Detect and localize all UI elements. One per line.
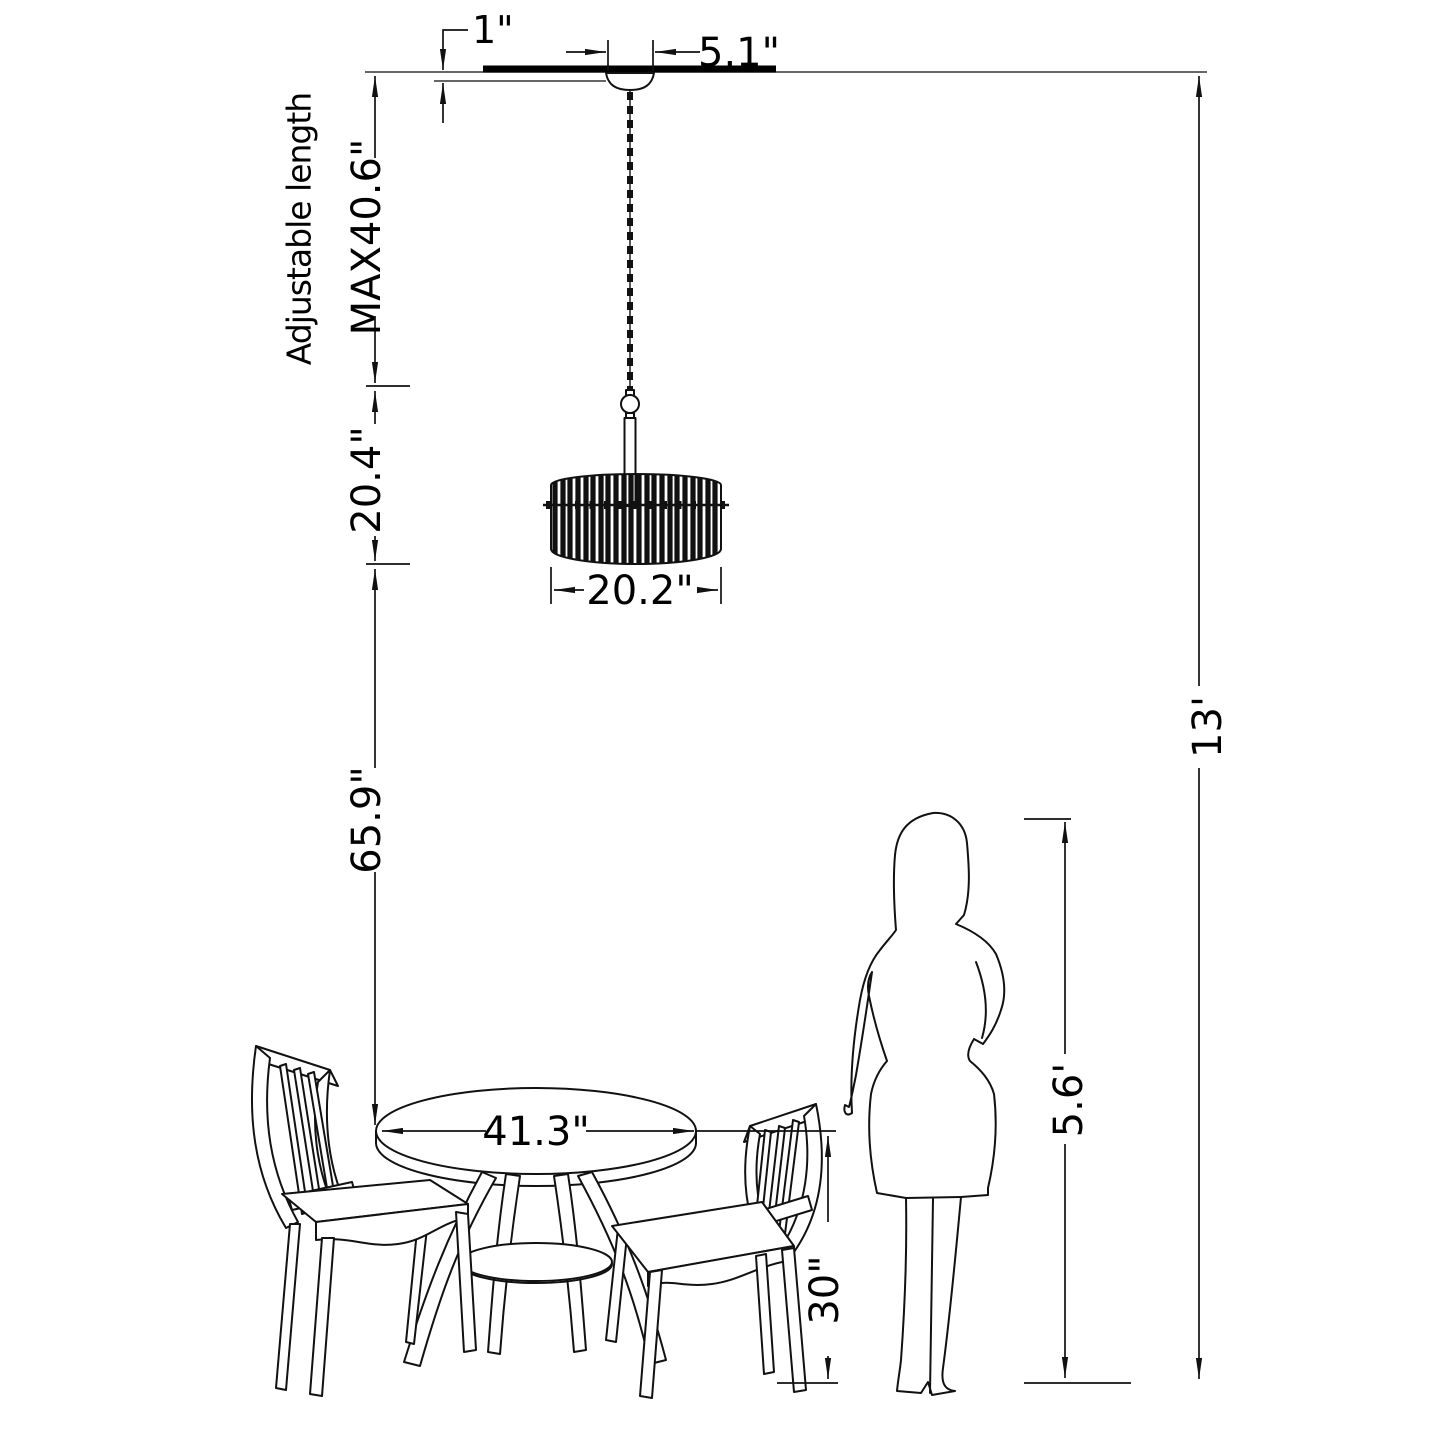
table-diameter-label: 41.3" xyxy=(482,1109,589,1155)
dimension-diagram: 1" 5.1" Adjustable length MAX40.6" 20.4"… xyxy=(0,0,1445,1445)
diagram-canvas: 1" 5.1" Adjustable length MAX40.6" 20.4"… xyxy=(0,0,1445,1445)
person-height-label: 5.6' xyxy=(1046,1063,1092,1138)
table-height-label: 30" xyxy=(802,1255,848,1324)
adjustable-length-note: Adjustable length xyxy=(280,93,319,365)
fixture-to-table-label: 65.9" xyxy=(344,766,390,873)
canopy-width-label: 5.1" xyxy=(698,30,780,76)
chain-finial-ball xyxy=(621,395,639,413)
plate-thickness-label: 1" xyxy=(472,8,514,52)
table-ring-stretcher xyxy=(460,1243,612,1281)
ceiling-height-label: 13' xyxy=(1185,696,1231,758)
fixture-diameter-label: 20.2" xyxy=(586,568,693,614)
max-hanging-length-label: MAX40.6" xyxy=(344,139,390,336)
fixture-height-label: 20.4" xyxy=(344,426,390,533)
